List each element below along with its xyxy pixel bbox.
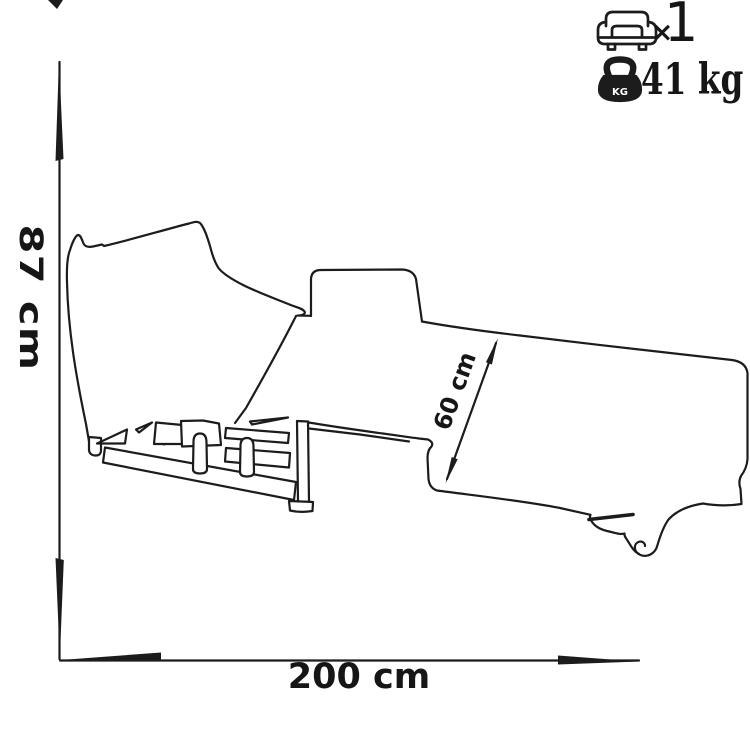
post-foot-pad [289,501,313,512]
width-dimension-label: 200 cm [249,655,469,699]
back-cushion-outline [67,222,311,447]
middle-bump-outline [311,270,422,322]
slat-bar [225,448,290,468]
cushion-front-edge [235,316,296,423]
diagram-canvas: KG [0,0,750,750]
height-dimension-label: 87 cm [11,207,51,389]
latch-peg [193,434,207,474]
slat-bar [225,428,289,443]
folding-mechanism [89,418,409,512]
kg-icon-label: KG [612,87,628,98]
support-post [297,421,309,502]
arrow-up-icon [56,60,64,161]
sofa-bed-outline [67,222,748,556]
arrow-down-icon [56,558,64,658]
foot-shadow-line [589,515,633,520]
left-foot [89,437,101,456]
bed-bottom-edge [303,422,639,555]
arrow-left-icon [61,653,161,662]
sofa-bed-dimension-diagram: KG 87 cm 200 cm 60 cm × 1 41 kg [0,0,750,750]
cropped-arrow-tip [48,0,63,9]
latch-peg [240,438,254,477]
strut-wedge [97,430,127,444]
seat-count-value: 1 [664,0,696,51]
arrow-down-left-icon [446,457,458,484]
strut-wedge [136,423,152,433]
strut-dash [250,418,288,425]
weight-value: 41 kg [641,57,732,103]
